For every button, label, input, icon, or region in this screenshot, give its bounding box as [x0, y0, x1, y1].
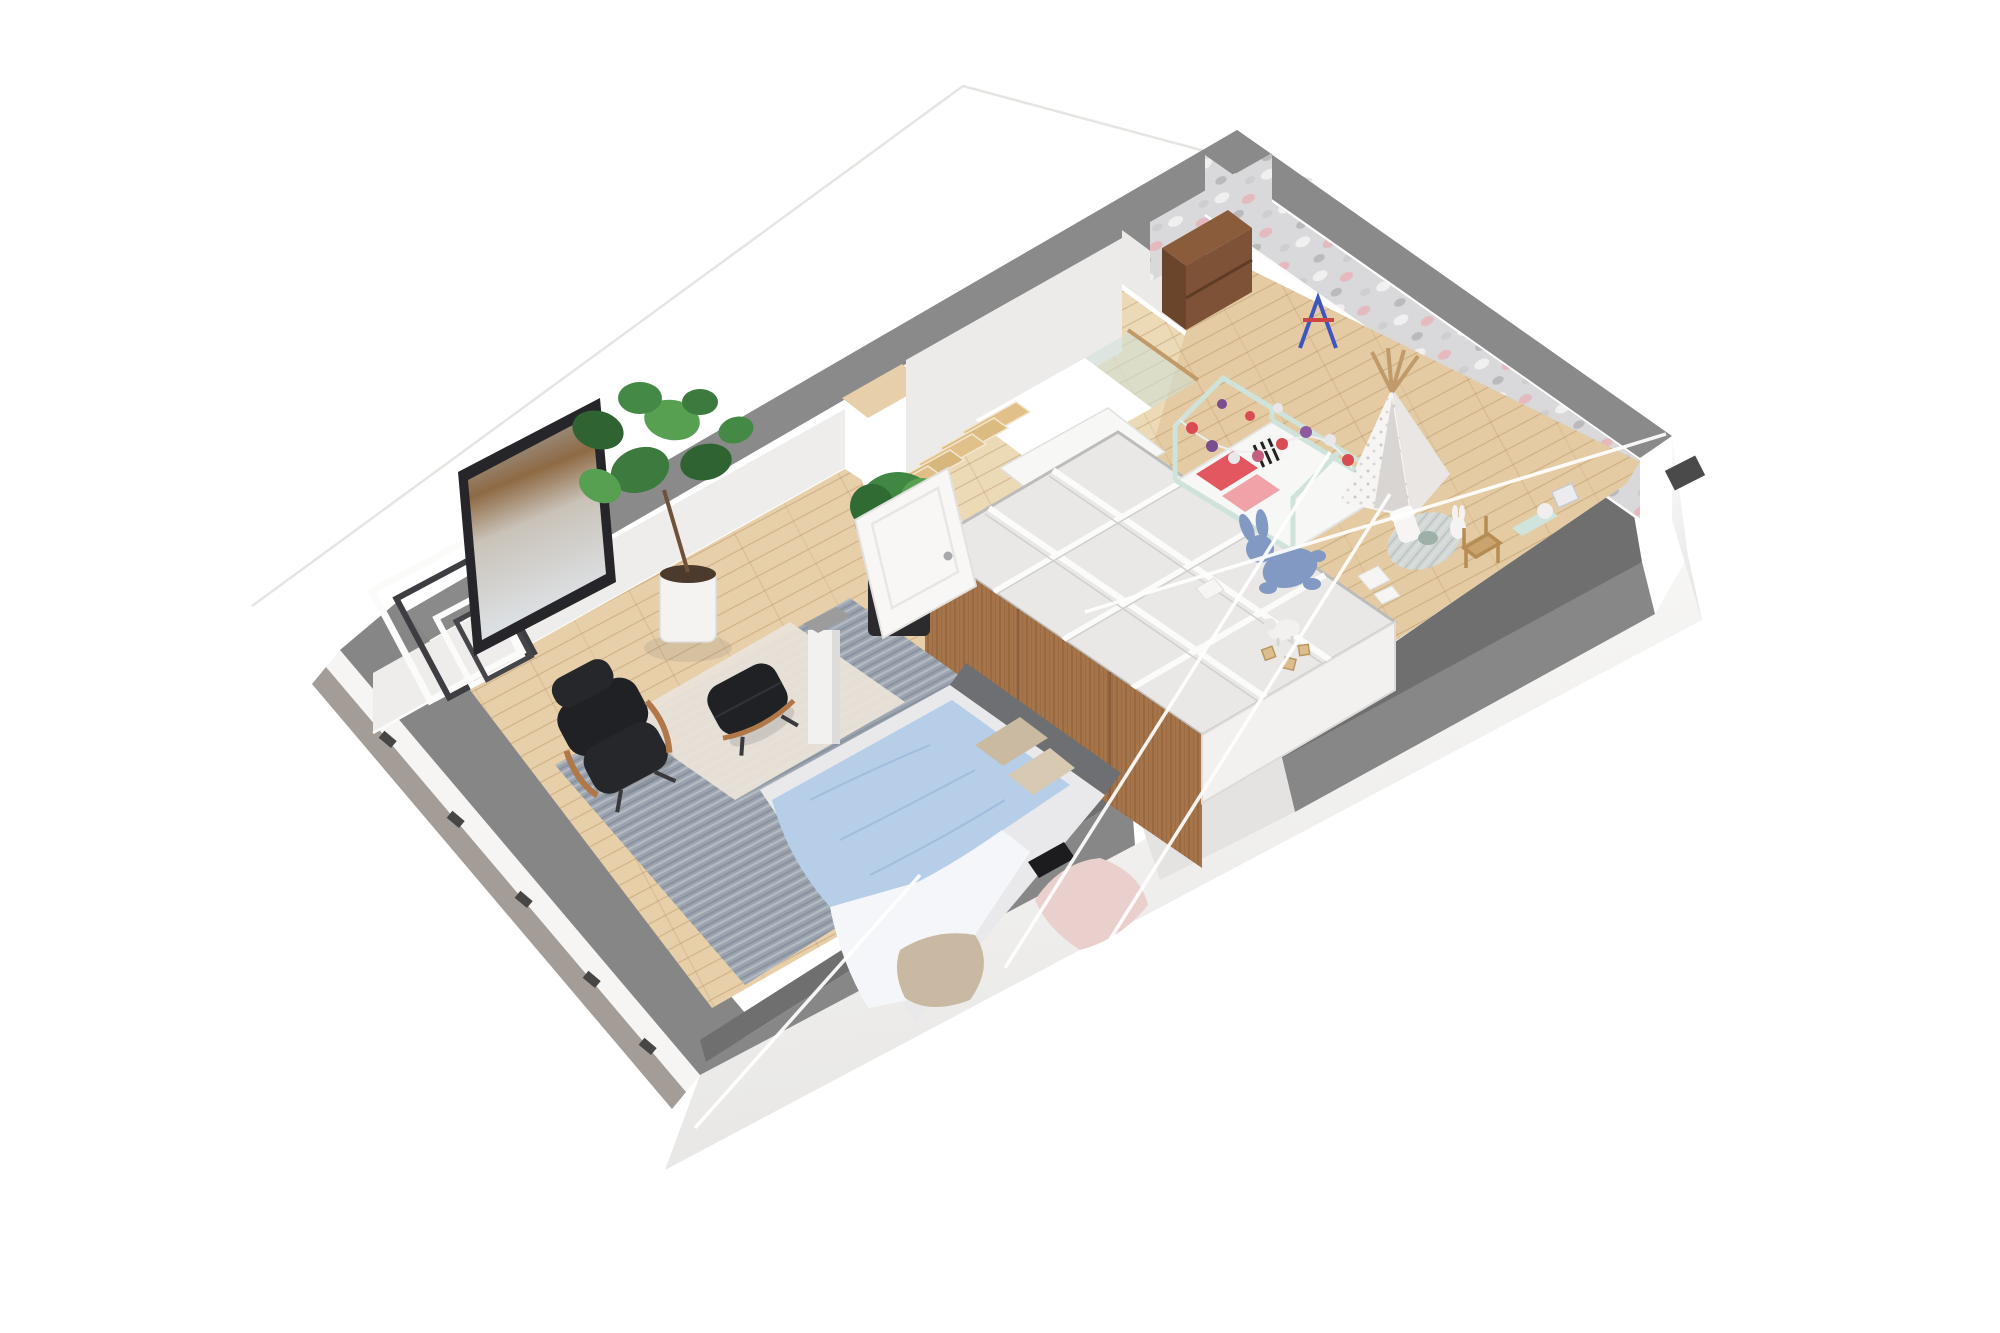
floor-plan-render [0, 0, 2000, 1333]
floor-plan-stage: 3D attic floor plan render (top-down axo… [0, 0, 2000, 1333]
chimney-stub [1665, 455, 1705, 490]
door-handle [944, 552, 953, 561]
bed-throw-taupe [897, 933, 984, 1007]
toy-teddy [1418, 531, 1438, 545]
sphere-lamp [1537, 503, 1553, 519]
